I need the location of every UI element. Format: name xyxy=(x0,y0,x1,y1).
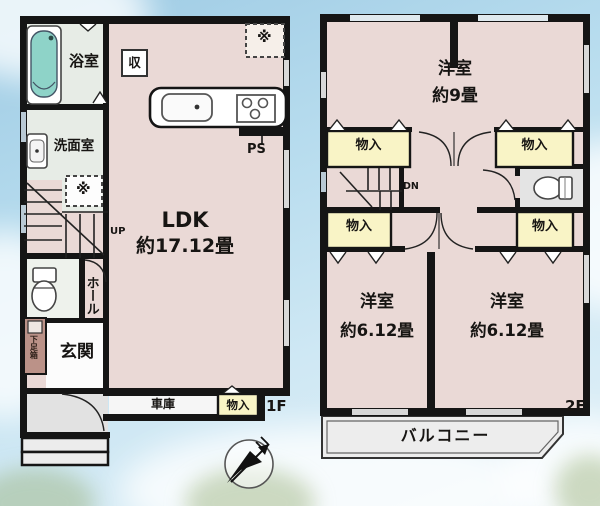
laundry-symbol: ※ xyxy=(76,182,91,198)
garage-label: 車庫 xyxy=(133,398,193,411)
bathroom-label: 浴室 xyxy=(60,54,108,70)
floor2-label: 2F xyxy=(565,399,586,415)
bedroom-right-name-label: 洋室 xyxy=(447,294,567,312)
ldk-size-label: 約17.12畳 xyxy=(103,237,267,257)
stairs-down-label: DN xyxy=(403,182,419,192)
washroom-label: 洗面室 xyxy=(42,139,106,153)
closet-2f-b-label: 物入 xyxy=(496,139,573,153)
compass-icon xyxy=(225,437,273,488)
shoe-cabinet-label: 下足箱 xyxy=(29,335,37,373)
kitchen-counter-icon xyxy=(150,88,286,127)
toilet-icon-2f xyxy=(534,177,572,199)
entrance-label: 玄関 xyxy=(48,344,106,362)
floor1-label: 1F xyxy=(266,399,287,415)
pipe-space-label: PS xyxy=(247,143,266,157)
porch-steps xyxy=(22,438,108,465)
storage-box-label: 収 xyxy=(122,56,147,69)
bedroom-main-name-label: 洋室 xyxy=(395,61,515,79)
closet-1f-label: 物入 xyxy=(218,399,258,411)
bedroom-left-name-label: 洋室 xyxy=(317,294,437,312)
bedroom-right-size-label: 約6.12畳 xyxy=(440,322,574,339)
floorplan-canvas: 浴室 洗面室 ※ ※ 収 PS UP LDK 約17.12畳 ホール 下足箱 玄… xyxy=(0,0,600,506)
fridge-symbol: ※ xyxy=(257,30,272,46)
hall-label: ホール xyxy=(84,276,98,340)
bathtub-icon xyxy=(27,26,61,104)
ldk-name-label: LDK xyxy=(120,209,250,231)
bedroom-main-size-label: 約9畳 xyxy=(395,88,515,106)
bedroom-left-size-label: 約6.12畳 xyxy=(310,322,444,339)
toilet-icon-1f xyxy=(32,268,56,311)
balcony-label: バルコニー xyxy=(368,428,523,445)
closet-2f-c-label: 物入 xyxy=(327,220,391,234)
closet-2f-d-label: 物入 xyxy=(517,220,573,234)
closet-2f-a-label: 物入 xyxy=(327,139,410,153)
